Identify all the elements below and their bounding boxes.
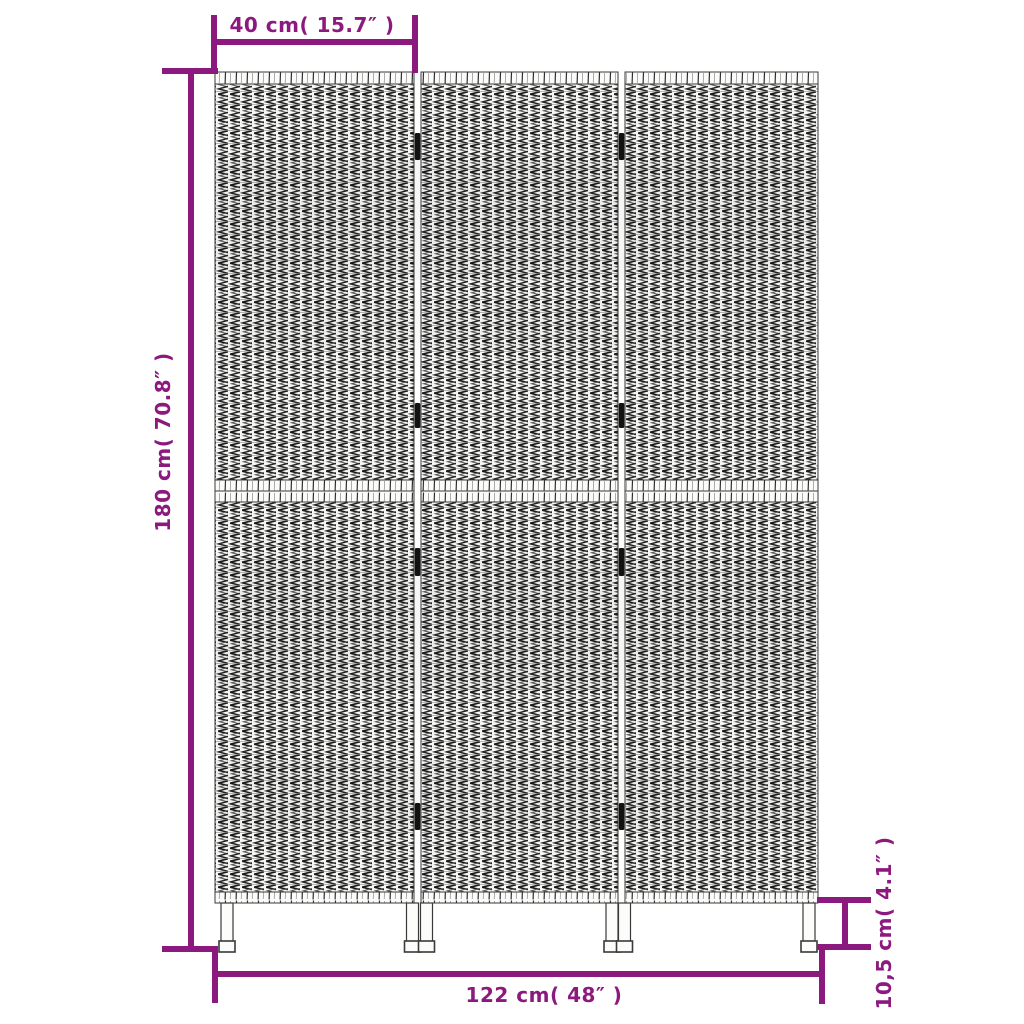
weave-shading bbox=[215, 160, 818, 280]
product-dimension-diagram: 40 cm( 15.7″ ) 180 cm( 70.8″ ) 122 cm( 4… bbox=[0, 0, 1024, 1024]
dim-panel-width-tick-right bbox=[412, 15, 418, 73]
hinge bbox=[619, 803, 625, 830]
panel-rail-middle bbox=[421, 480, 618, 491]
panel-rail-top bbox=[625, 72, 818, 84]
panel-rail-bottom bbox=[215, 892, 414, 903]
hinge bbox=[619, 548, 625, 576]
panel-weave-upper bbox=[215, 84, 414, 480]
dim-total-width-line bbox=[212, 971, 825, 977]
leg-foot bbox=[419, 941, 435, 952]
panel-rail-middle bbox=[215, 480, 414, 491]
panel-width-label: 40 cm( 15.7″ ) bbox=[230, 13, 395, 37]
leg-post bbox=[221, 903, 233, 942]
dim-height-tick-top bbox=[162, 68, 218, 74]
hinge bbox=[415, 133, 421, 160]
dim-leg-height-tick-top bbox=[817, 897, 871, 903]
leg-post bbox=[619, 903, 631, 942]
leg-foot bbox=[617, 941, 633, 952]
dim-height-tick-bottom bbox=[162, 946, 218, 952]
dim-height-line bbox=[188, 70, 194, 952]
dim-total-width-tick-right bbox=[819, 946, 825, 1004]
weave-shading bbox=[215, 300, 818, 350]
panel-rail-bottom bbox=[421, 892, 618, 903]
dim-panel-width-tick-left bbox=[211, 15, 217, 73]
total-width-label: 122 cm( 48″ ) bbox=[466, 983, 623, 1007]
panel-weave-upper bbox=[421, 84, 618, 480]
leg-post bbox=[421, 903, 433, 942]
hinge bbox=[415, 803, 421, 830]
leg-height-label: 10,5 cm( 4.1″ ) bbox=[872, 836, 896, 1009]
dim-leg-height-tick-bottom bbox=[817, 944, 871, 950]
panel-rail-middle bbox=[625, 480, 818, 491]
panel-rail-middle bbox=[421, 491, 618, 502]
height-label: 180 cm( 70.8″ ) bbox=[151, 352, 175, 531]
panel-rail-top bbox=[215, 72, 414, 84]
leg-foot bbox=[801, 941, 817, 952]
panel-rail-bottom bbox=[625, 892, 818, 903]
hinge bbox=[415, 548, 421, 576]
panel-rail-middle bbox=[215, 491, 414, 502]
dim-total-width-tick-left bbox=[212, 948, 218, 1003]
leg-post bbox=[606, 903, 618, 942]
panel-rail-top bbox=[421, 72, 618, 84]
hinge bbox=[415, 403, 421, 428]
weave-shading bbox=[215, 760, 818, 830]
leg-post bbox=[407, 903, 419, 942]
dim-panel-width-line bbox=[211, 39, 418, 45]
panel-weave-upper bbox=[625, 84, 818, 480]
leg-post bbox=[803, 903, 815, 942]
dim-leg-height-line bbox=[842, 900, 848, 947]
panel-rail-middle bbox=[625, 491, 818, 502]
legs bbox=[219, 903, 817, 952]
hinge bbox=[619, 133, 625, 160]
leg-foot bbox=[219, 941, 235, 952]
weave-shading bbox=[215, 560, 818, 690]
hinge bbox=[619, 403, 625, 428]
